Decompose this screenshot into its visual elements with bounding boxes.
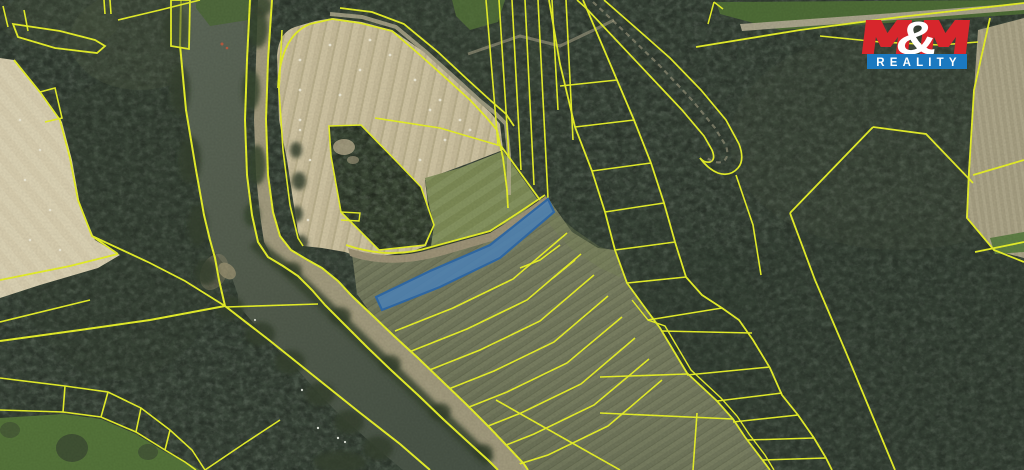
svg-text:REALITY: REALITY — [876, 57, 962, 69]
